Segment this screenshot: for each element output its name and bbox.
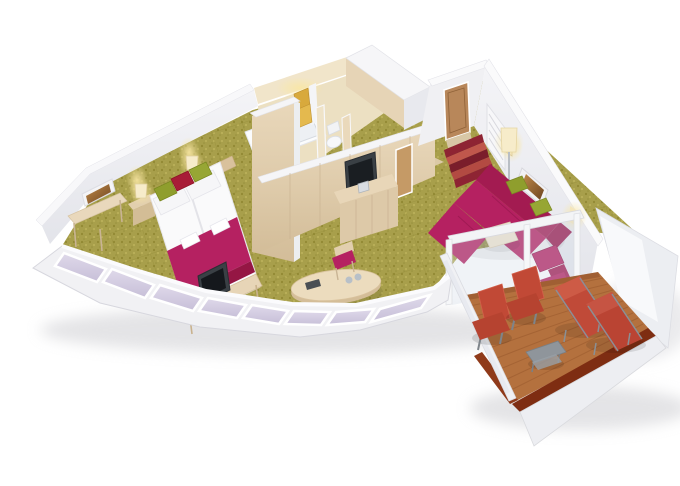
bathroom-door bbox=[396, 144, 412, 198]
floorplan-canvas bbox=[0, 0, 680, 486]
table-cup bbox=[355, 274, 362, 281]
window-pane bbox=[285, 311, 330, 325]
floor-lamp-shade bbox=[501, 128, 517, 152]
entry-door bbox=[444, 82, 470, 140]
table-lamp-left bbox=[135, 184, 147, 198]
table-cup bbox=[346, 277, 353, 284]
door-post bbox=[574, 213, 580, 279]
wc-divider-wall bbox=[316, 105, 326, 163]
suite-floorplan-rendering bbox=[0, 0, 680, 486]
